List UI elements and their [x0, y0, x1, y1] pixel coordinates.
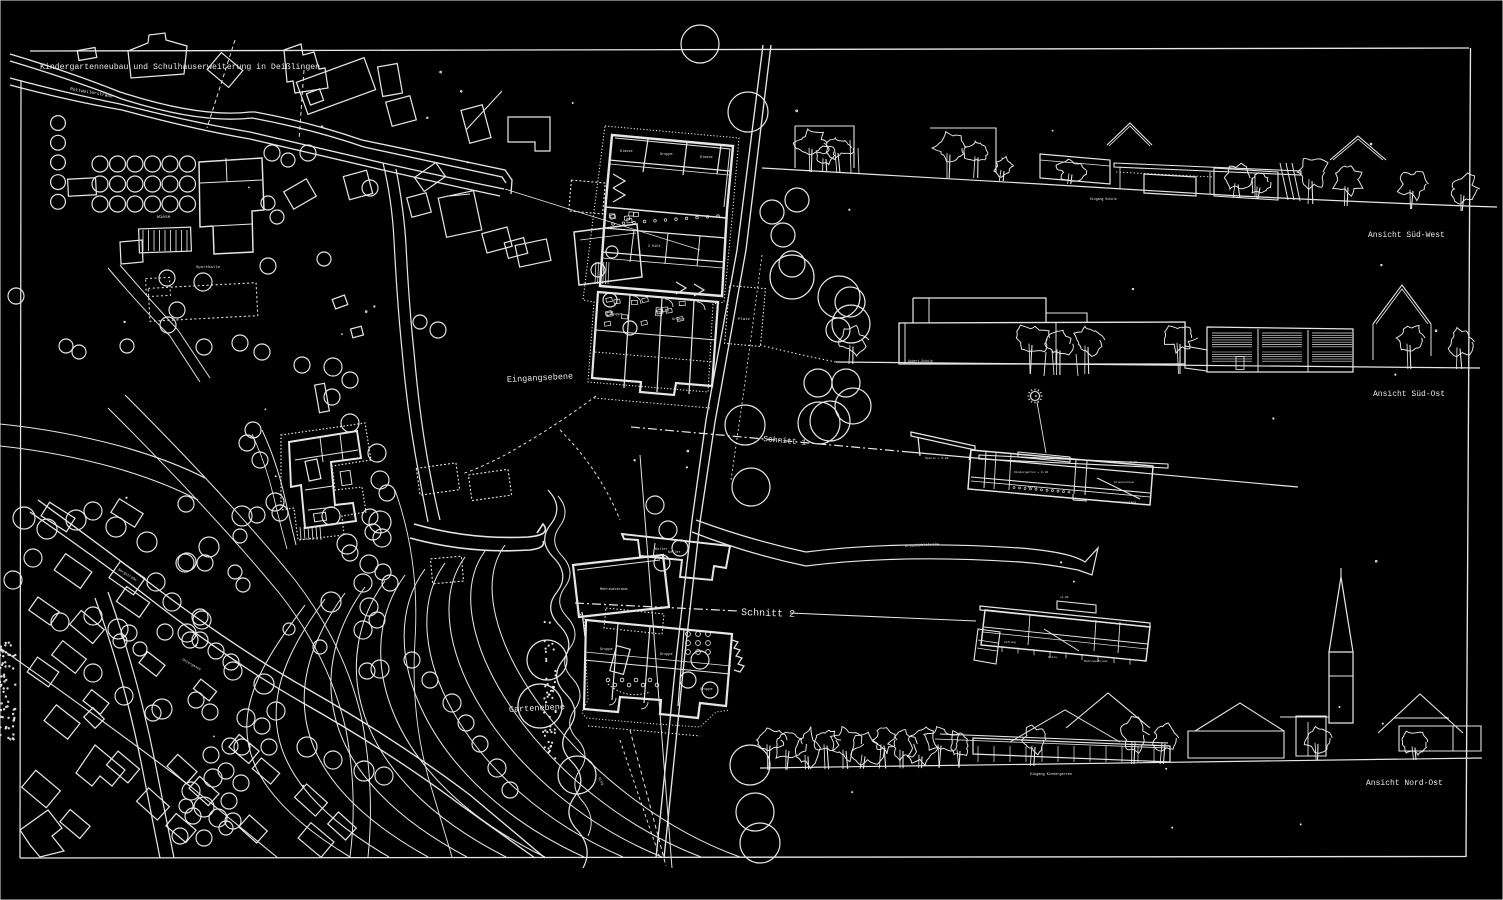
- svg-text:Halle: Halle: [1048, 655, 1057, 659]
- svg-text:Gruppenraum: Gruppenraum: [1114, 481, 1134, 484]
- svg-text:Gruppe: Gruppe: [660, 152, 673, 157]
- svg-text:Eingangsebene: Eingangsebene: [507, 372, 574, 385]
- svg-text:Wiese: Wiese: [157, 214, 171, 220]
- svg-text:2 KiGr: 2 KiGr: [648, 244, 661, 249]
- svg-text:Kindergartenneubau und Schulha: Kindergartenneubau und Schulhauserweiter…: [40, 62, 320, 72]
- svg-text:Gruppe: Gruppe: [610, 312, 623, 317]
- svg-text:Lüftung: Lüftung: [1004, 640, 1016, 644]
- svg-text:+2.80: +2.80: [1060, 596, 1069, 599]
- svg-text:Untergasse: Untergasse: [181, 657, 202, 672]
- svg-text:Schnitt 2: Schnitt 2: [741, 607, 795, 621]
- svg-text:Gartenebene: Gartenebene: [509, 702, 566, 715]
- svg-text:Gruppe: Gruppe: [672, 317, 685, 322]
- svg-text:Ansicht Süd-Ost: Ansicht Süd-Ost: [1373, 390, 1445, 399]
- svg-text:Sporthalle: Sporthalle: [196, 265, 221, 270]
- svg-text:Eingang Kindergarten: Eingang Kindergarten: [1030, 772, 1072, 777]
- svg-text:Aubert-Schule: Aubert-Schule: [908, 359, 933, 363]
- svg-text:Klasse: Klasse: [700, 155, 713, 160]
- svg-text:Ansicht Süd-West: Ansicht Süd-West: [1368, 231, 1445, 240]
- svg-text:Spiele + 0.00: Spiele + 0.00: [925, 456, 949, 460]
- svg-text:Bergstraße: Bergstraße: [117, 567, 137, 582]
- svg-text:Platz: Platz: [738, 317, 751, 322]
- svg-text:Kindergarten + 0.34: Kindergarten + 0.34: [1014, 470, 1048, 474]
- svg-text:Ansicht Nord-Ost: Ansicht Nord-Ost: [1366, 779, 1443, 788]
- svg-text:Mehrzweckraum: Mehrzweckraum: [600, 587, 627, 592]
- svg-text:Mehrzweckraum: Mehrzweckraum: [1084, 659, 1108, 663]
- svg-text:Steg: Steg: [596, 777, 604, 786]
- svg-text:Liegenraum: Liegenraum: [1118, 500, 1136, 504]
- svg-text:Gruppe: Gruppe: [660, 652, 673, 657]
- svg-text:+3.80: +3.80: [1128, 461, 1137, 464]
- svg-text:Eingang Schule: Eingang Schule: [1090, 197, 1117, 201]
- svg-text:Kreuzbühlstraße: Kreuzbühlstraße: [905, 542, 940, 549]
- svg-text:Schnitt 1: Schnitt 1: [763, 435, 807, 448]
- svg-text:Keller: Keller: [655, 547, 668, 552]
- svg-text:Halle: Halle: [1028, 485, 1037, 489]
- svg-text:Gruppe: Gruppe: [600, 647, 613, 652]
- svg-text:Klasse: Klasse: [620, 149, 633, 154]
